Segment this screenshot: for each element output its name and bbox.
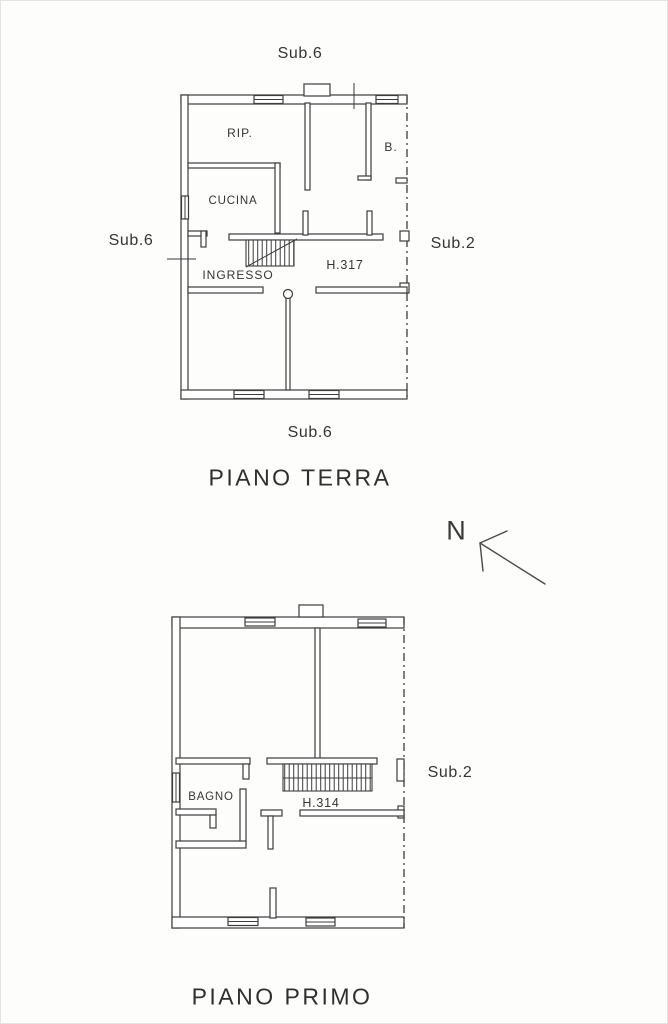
height-label-ground: H.317 bbox=[326, 258, 363, 272]
north-arrow-icon bbox=[480, 531, 545, 584]
height-label-first: H.314 bbox=[302, 796, 339, 810]
ground-sub-top-label: Sub.6 bbox=[278, 45, 323, 63]
bathroom-walls bbox=[176, 758, 250, 848]
room-label-b: B. bbox=[384, 140, 397, 154]
chimney-projection bbox=[299, 605, 323, 617]
north-label: N bbox=[446, 516, 466, 547]
ground-sub-left-label: Sub.6 bbox=[109, 232, 154, 250]
room-label-bagno: BAGNO bbox=[188, 791, 234, 803]
door-pivot bbox=[284, 290, 293, 299]
door-post bbox=[261, 810, 282, 849]
room-label-rip: RIP. bbox=[227, 126, 253, 140]
floor-plan-drawing bbox=[0, 0, 668, 1024]
first-floor-plan bbox=[172, 605, 404, 928]
scanned-floor-plan-page: Sub.6 RIP. B. CUCINA Sub.6 Sub.2 INGRESS… bbox=[0, 0, 668, 1024]
first-sub-right-label: Sub.2 bbox=[428, 764, 473, 782]
room-label-ingresso: INGRESSO bbox=[202, 268, 273, 282]
staircase-first bbox=[283, 764, 372, 791]
ground-sub-right-label: Sub.2 bbox=[431, 235, 476, 253]
chimney-projection bbox=[304, 84, 330, 96]
first-floor-title: PIANO PRIMO bbox=[192, 984, 373, 1011]
room-label-cucina: CUCINA bbox=[209, 195, 258, 207]
ground-floor-title: PIANO TERRA bbox=[209, 465, 392, 492]
staircase-ground bbox=[246, 239, 297, 267]
ground-floor-plan bbox=[167, 83, 409, 399]
ground-sub-bottom-label: Sub.6 bbox=[288, 424, 333, 442]
